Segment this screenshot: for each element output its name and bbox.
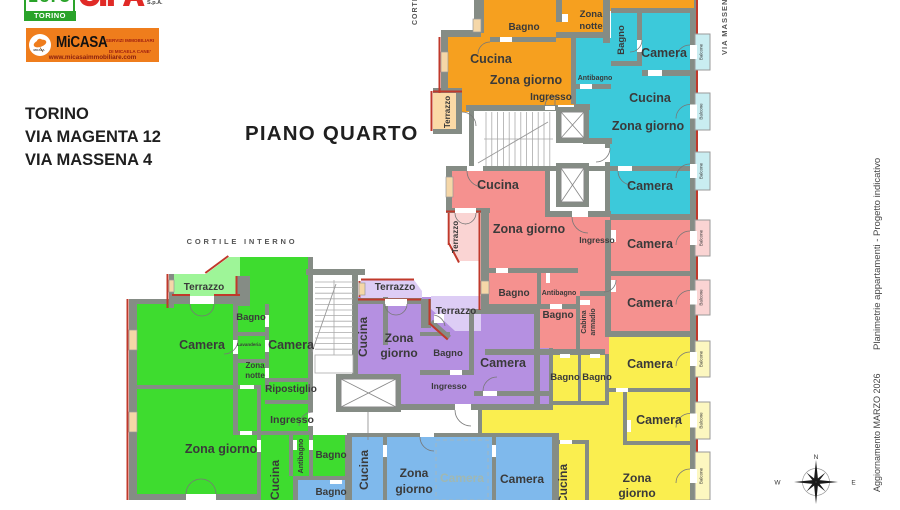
svg-text:Cabina: Cabina [581,310,588,333]
svg-text:giorno: giorno [380,346,417,360]
svg-text:Balcone: Balcone [699,229,704,246]
svg-text:Terrazzo: Terrazzo [184,282,224,293]
svg-text:Zona: Zona [623,471,652,485]
svg-text:Camera: Camera [268,338,315,352]
svg-text:Bagno: Bagno [236,312,266,323]
svg-text:Bagno: Bagno [582,372,612,383]
svg-text:E: E [851,480,856,487]
svg-text:Camera: Camera [627,179,674,193]
svg-text:Cucina: Cucina [356,317,370,357]
svg-text:giorno: giorno [618,486,655,500]
svg-text:Zona: Zona [400,466,429,480]
svg-text:Bagno: Bagno [315,450,346,461]
svg-text:Balcone: Balcone [699,412,704,429]
svg-text:Cucina: Cucina [268,460,282,500]
svg-text:Planimetrie appartamenti - Pro: Planimetrie appartamenti - Progetto indi… [872,158,883,350]
svg-text:Ingresso: Ingresso [530,92,572,103]
svg-text:Camera: Camera [440,471,484,485]
svg-text:Cucina: Cucina [470,52,513,66]
svg-text:Zona: Zona [245,361,265,370]
svg-text:Balcone: Balcone [699,289,704,306]
svg-text:Zona: Zona [580,9,603,20]
svg-text:Ingresso: Ingresso [270,414,314,426]
svg-text:Camera: Camera [636,413,683,427]
svg-text:CORTILE: CORTILE [412,0,419,25]
svg-text:Bagno: Bagno [433,348,463,359]
svg-text:Ingresso: Ingresso [579,235,614,245]
svg-text:Antibagno: Antibagno [578,75,613,82]
svg-text:Camera: Camera [627,296,674,310]
svg-text:Bagno: Bagno [498,288,529,299]
svg-text:Camera: Camera [179,338,226,352]
svg-text:Bagno: Bagno [508,22,539,33]
svg-text:Bagno: Bagno [550,372,580,383]
svg-text:Lavanderia: Lavanderia [237,342,261,347]
svg-text:Cucina: Cucina [556,464,570,500]
svg-text:Cucina: Cucina [357,450,371,490]
svg-text:Ripostiglio: Ripostiglio [265,384,317,395]
svg-text:Terrazzo: Terrazzo [451,221,460,253]
svg-text:Antibagno: Antibagno [298,439,305,474]
svg-text:Balcone: Balcone [699,43,704,60]
svg-text:armadio: armadio [590,308,597,335]
svg-text:Bagno: Bagno [542,310,573,321]
svg-text:Balcone: Balcone [699,467,704,484]
svg-text:Balcone: Balcone [699,350,704,367]
svg-text:Aggiornamento MARZO 2026: Aggiornamento MARZO 2026 [872,373,882,492]
svg-text:Zona giorno: Zona giorno [185,442,258,456]
svg-text:Camera: Camera [641,46,688,60]
svg-text:giorno: giorno [395,482,432,496]
svg-text:Zona: Zona [385,331,414,345]
svg-text:Camera: Camera [627,357,674,371]
svg-text:N: N [814,454,819,461]
svg-text:VIA MASSENA: VIA MASSENA [720,0,729,55]
svg-text:Zona giorno: Zona giorno [612,119,685,133]
svg-text:Terrazzo: Terrazzo [375,282,415,293]
svg-text:Camera: Camera [480,356,527,370]
svg-text:W: W [774,480,781,487]
svg-text:Terrazzo: Terrazzo [436,306,476,317]
svg-text:Antibagno: Antibagno [542,290,577,297]
svg-text:Camera: Camera [500,472,544,486]
svg-text:CORTILE INTERNO: CORTILE INTERNO [187,237,298,246]
svg-text:Balcone: Balcone [699,103,704,120]
svg-text:notte: notte [245,371,265,380]
svg-text:Zona giorno: Zona giorno [490,73,563,87]
svg-text:Terrazzo: Terrazzo [443,96,452,128]
svg-text:Bagno: Bagno [315,487,346,498]
svg-text:Cucina: Cucina [477,178,520,192]
svg-text:Balcone: Balcone [699,162,704,179]
svg-text:Ingresso: Ingresso [431,381,466,391]
svg-text:MICASA: MICASA [33,48,44,52]
svg-text:Bagno: Bagno [616,25,627,55]
svg-text:Camera: Camera [627,237,674,251]
svg-text:notte: notte [579,21,602,32]
svg-text:Cucina: Cucina [629,91,672,105]
svg-text:Zona giorno: Zona giorno [493,222,566,236]
